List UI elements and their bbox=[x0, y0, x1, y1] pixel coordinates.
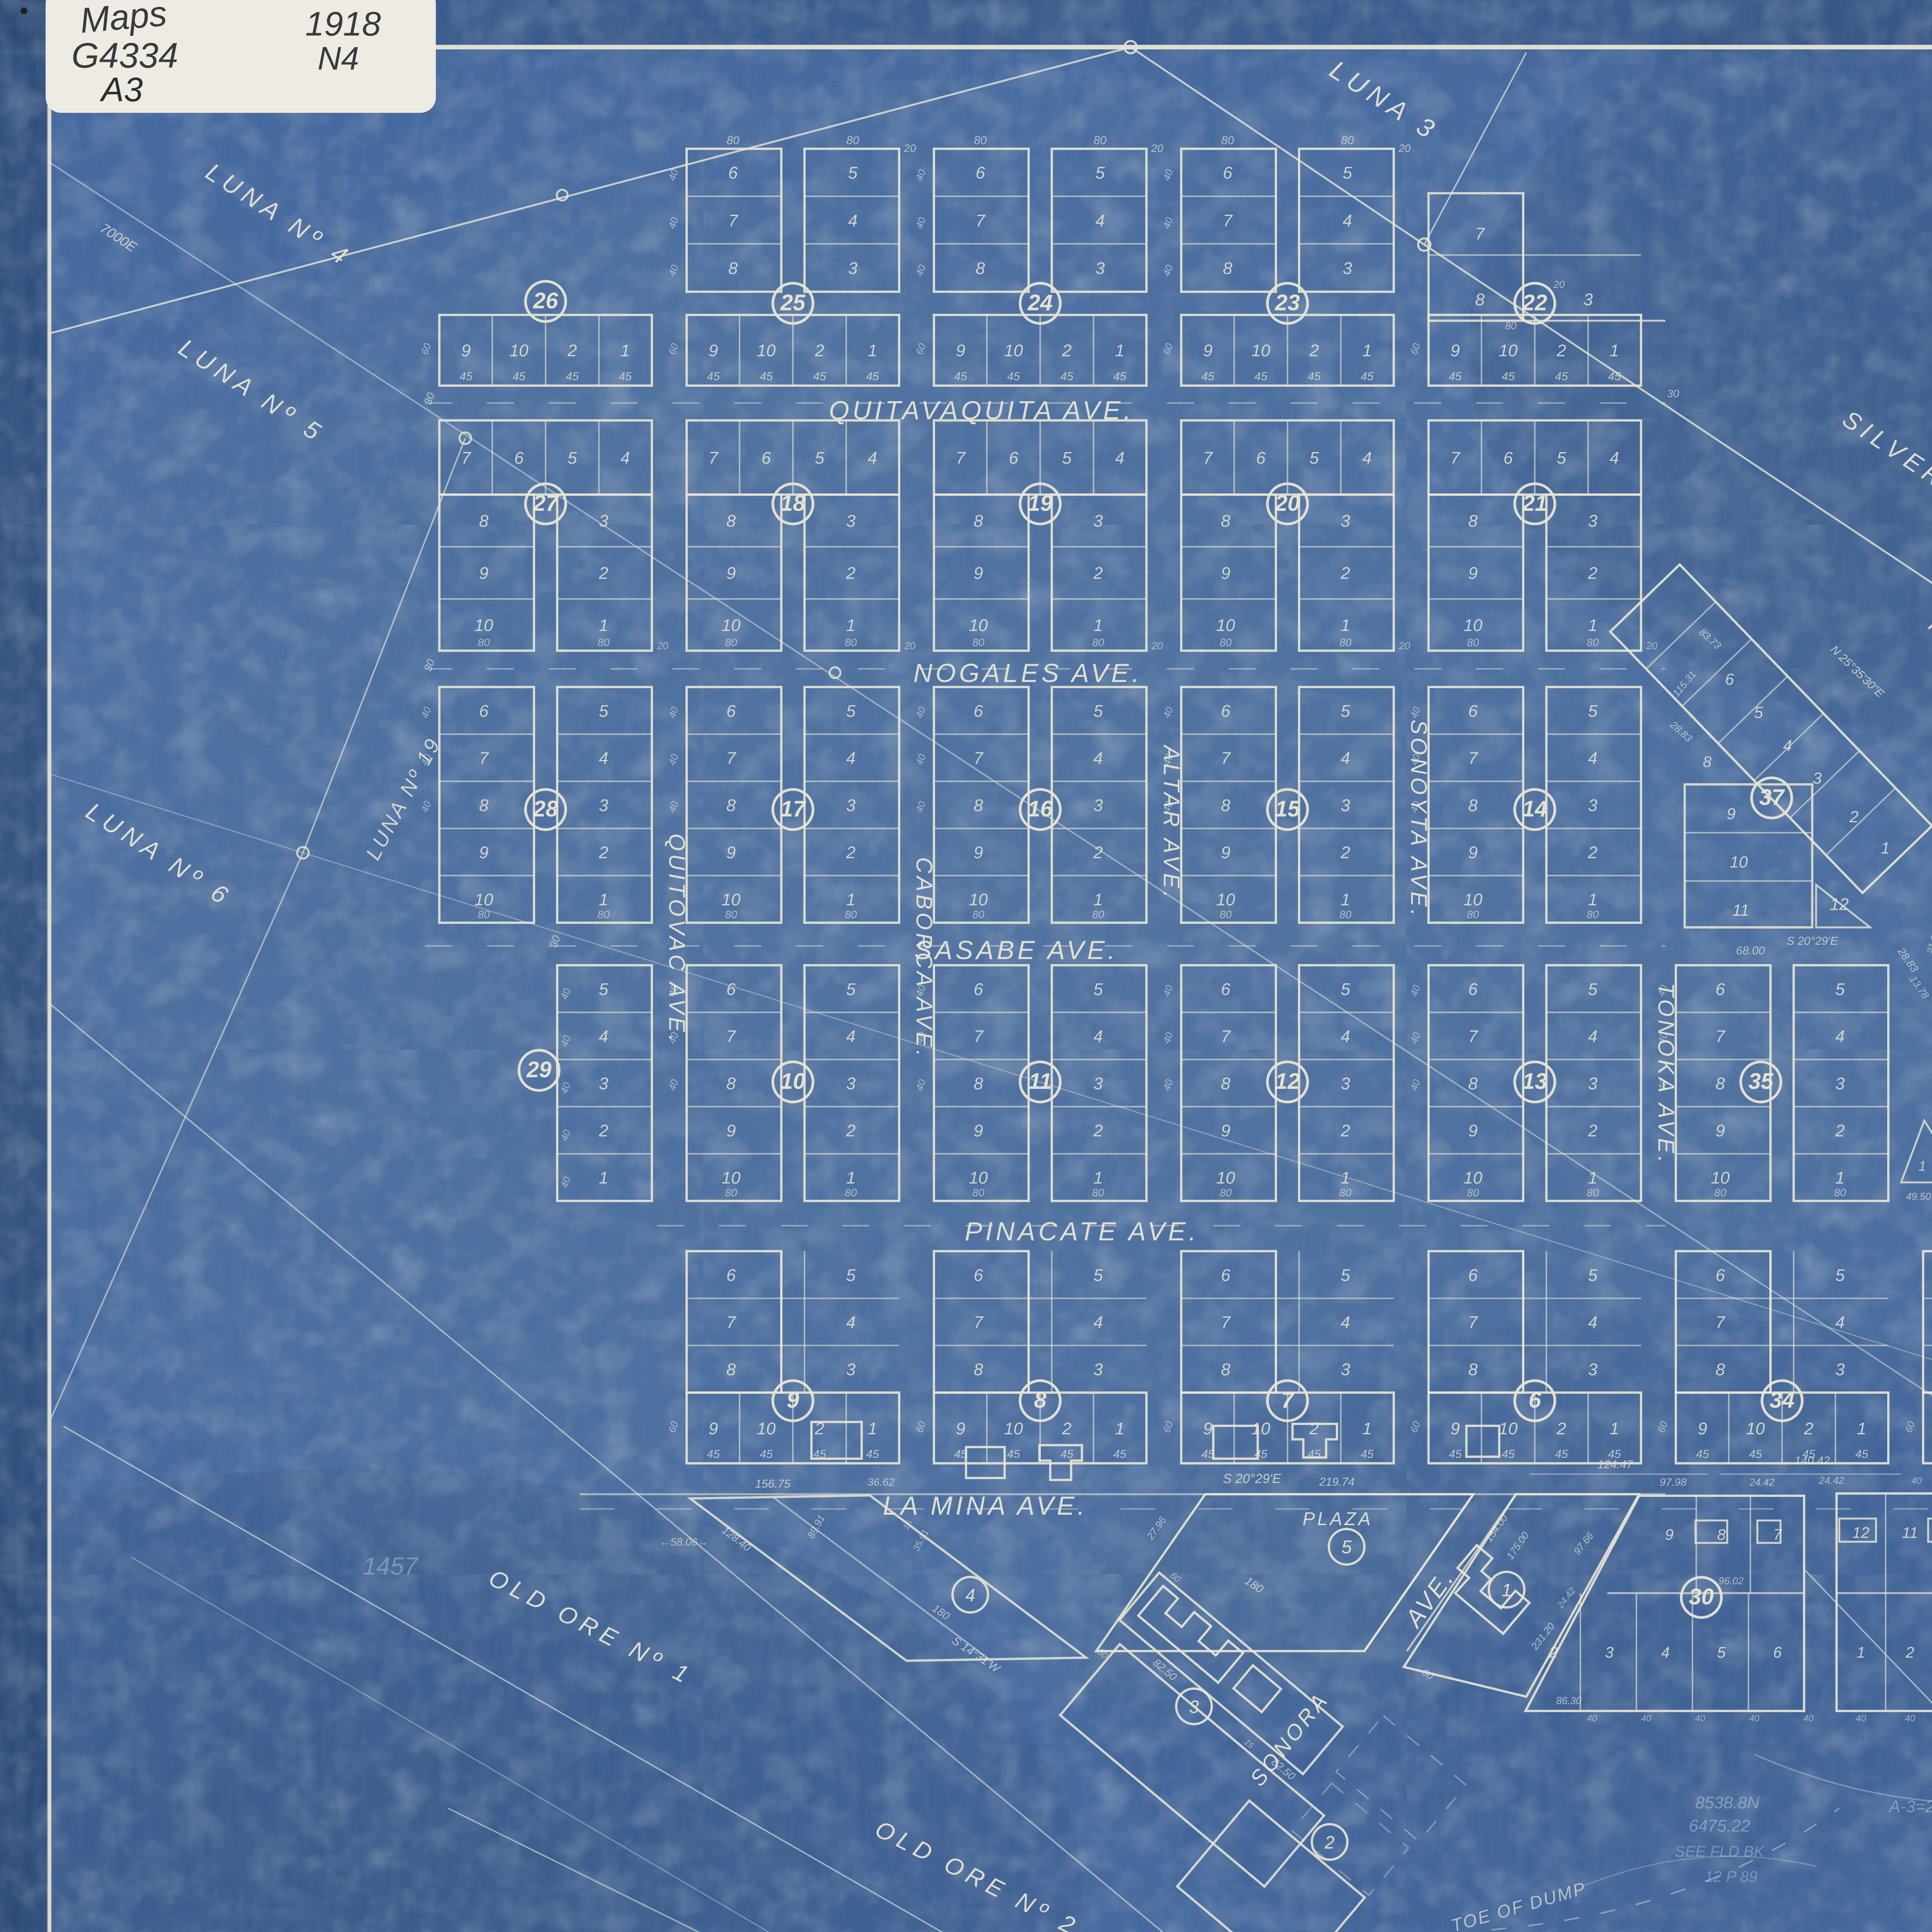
svg-text:3: 3 bbox=[1094, 1360, 1103, 1379]
svg-text:20: 20 bbox=[1151, 142, 1163, 154]
svg-text:8: 8 bbox=[726, 796, 736, 815]
svg-text:12: 12 bbox=[1275, 1069, 1300, 1094]
svg-text:ALTAR AVE.: ALTAR AVE. bbox=[1159, 744, 1184, 900]
svg-text:10: 10 bbox=[757, 341, 776, 360]
svg-text:1: 1 bbox=[1918, 1158, 1926, 1174]
svg-text:2: 2 bbox=[599, 843, 608, 862]
svg-text:3: 3 bbox=[1341, 512, 1350, 531]
svg-text:45: 45 bbox=[1113, 1448, 1126, 1461]
svg-text:1: 1 bbox=[599, 616, 608, 635]
svg-text:45: 45 bbox=[1555, 1448, 1568, 1461]
svg-text:5: 5 bbox=[1310, 449, 1319, 468]
svg-text:2: 2 bbox=[1324, 1832, 1335, 1852]
svg-text:1: 1 bbox=[1115, 1419, 1124, 1438]
svg-text:3: 3 bbox=[846, 1074, 856, 1093]
svg-text:2: 2 bbox=[846, 1121, 855, 1140]
svg-text:8: 8 bbox=[1221, 512, 1231, 531]
svg-text:2: 2 bbox=[1556, 1419, 1566, 1438]
svg-text:6: 6 bbox=[1503, 449, 1513, 468]
svg-text:1: 1 bbox=[1588, 890, 1597, 909]
svg-text:4: 4 bbox=[1343, 211, 1352, 230]
svg-text:2: 2 bbox=[1588, 564, 1597, 583]
svg-text:7: 7 bbox=[461, 449, 471, 468]
svg-text:1: 1 bbox=[1094, 890, 1103, 909]
svg-text:2: 2 bbox=[567, 341, 577, 360]
svg-text:40: 40 bbox=[1695, 1713, 1706, 1724]
svg-text:11: 11 bbox=[1732, 901, 1749, 919]
svg-text:156.75: 156.75 bbox=[755, 1478, 791, 1490]
svg-text:2: 2 bbox=[1549, 1644, 1558, 1661]
svg-text:7: 7 bbox=[1203, 449, 1213, 468]
svg-text:5: 5 bbox=[1835, 980, 1845, 999]
svg-text:8: 8 bbox=[1717, 1526, 1726, 1543]
svg-text:45: 45 bbox=[1201, 370, 1214, 383]
svg-text:7: 7 bbox=[1468, 749, 1478, 768]
svg-text:45: 45 bbox=[1502, 1448, 1515, 1461]
svg-text:80: 80 bbox=[478, 636, 490, 648]
svg-text:2: 2 bbox=[1905, 1644, 1914, 1661]
svg-text:80: 80 bbox=[845, 636, 857, 648]
svg-text:1457: 1457 bbox=[363, 1552, 419, 1580]
svg-text:4: 4 bbox=[1588, 749, 1597, 768]
svg-text:4: 4 bbox=[1588, 1313, 1597, 1332]
svg-text:5: 5 bbox=[848, 163, 858, 182]
svg-text:10: 10 bbox=[1464, 616, 1483, 635]
svg-text:8: 8 bbox=[1034, 1388, 1047, 1413]
svg-text:2: 2 bbox=[1062, 341, 1071, 360]
svg-text:6: 6 bbox=[1725, 670, 1734, 688]
svg-text:8: 8 bbox=[726, 1360, 736, 1379]
svg-text:49.50: 49.50 bbox=[1906, 1190, 1931, 1202]
svg-text:45: 45 bbox=[760, 1448, 773, 1461]
svg-text:6: 6 bbox=[1221, 702, 1231, 721]
svg-text:45: 45 bbox=[1254, 370, 1267, 383]
svg-text:9: 9 bbox=[1221, 1121, 1230, 1140]
svg-text:20: 20 bbox=[904, 640, 916, 651]
svg-text:80: 80 bbox=[1467, 636, 1479, 648]
svg-text:45: 45 bbox=[1555, 370, 1568, 383]
svg-text:7: 7 bbox=[1221, 1313, 1231, 1332]
svg-text:4: 4 bbox=[621, 449, 630, 468]
svg-text:45: 45 bbox=[813, 370, 826, 383]
svg-text:QUITOVAC AVE.: QUITOVAC AVE. bbox=[664, 833, 689, 1044]
svg-text:17: 17 bbox=[781, 796, 806, 821]
svg-text:8538.8N: 8538.8N bbox=[1695, 1793, 1760, 1812]
svg-text:40: 40 bbox=[1856, 1713, 1866, 1724]
svg-text:80: 80 bbox=[972, 636, 985, 648]
svg-text:40: 40 bbox=[1587, 1713, 1597, 1724]
svg-text:80: 80 bbox=[845, 1187, 857, 1199]
svg-text:10: 10 bbox=[474, 890, 493, 909]
svg-text:40: 40 bbox=[1641, 1713, 1651, 1724]
svg-text:80: 80 bbox=[725, 636, 737, 648]
svg-text:1: 1 bbox=[599, 1168, 608, 1187]
svg-text:10: 10 bbox=[510, 341, 529, 360]
svg-text:10: 10 bbox=[757, 1419, 776, 1438]
svg-text:3: 3 bbox=[846, 512, 856, 531]
svg-text:80: 80 bbox=[1587, 1187, 1599, 1199]
svg-text:A-3=29: A-3=29 bbox=[1888, 1797, 1932, 1816]
svg-text:80: 80 bbox=[1092, 636, 1104, 648]
svg-text:1: 1 bbox=[1341, 616, 1350, 635]
svg-text:G4334: G4334 bbox=[71, 36, 178, 75]
svg-text:80: 80 bbox=[1339, 1187, 1352, 1199]
svg-text:45: 45 bbox=[866, 1448, 879, 1461]
svg-text:1: 1 bbox=[868, 1419, 877, 1438]
svg-text:45: 45 bbox=[866, 370, 879, 383]
svg-text:7: 7 bbox=[956, 449, 966, 468]
svg-text:5: 5 bbox=[1062, 449, 1072, 468]
svg-text:3: 3 bbox=[1094, 512, 1103, 531]
svg-text:45: 45 bbox=[954, 370, 967, 383]
svg-text:20: 20 bbox=[903, 142, 916, 154]
svg-text:8: 8 bbox=[1716, 1074, 1725, 1093]
svg-text:80: 80 bbox=[1834, 1187, 1846, 1199]
svg-text:3: 3 bbox=[1341, 1360, 1350, 1379]
svg-text:2: 2 bbox=[599, 564, 608, 583]
svg-text:45: 45 bbox=[1361, 1448, 1374, 1461]
svg-text:3: 3 bbox=[846, 1360, 856, 1379]
svg-text:3: 3 bbox=[846, 796, 856, 815]
svg-text:2: 2 bbox=[846, 843, 855, 862]
svg-text:SONOYTA AVE.: SONOYTA AVE. bbox=[1406, 719, 1431, 919]
svg-text:45: 45 bbox=[1113, 370, 1126, 383]
svg-text:4: 4 bbox=[1094, 749, 1103, 768]
svg-text:7: 7 bbox=[974, 1027, 984, 1046]
svg-text:80: 80 bbox=[1714, 1187, 1726, 1199]
svg-text:2: 2 bbox=[1093, 1121, 1103, 1140]
svg-text:7: 7 bbox=[1223, 211, 1233, 230]
svg-text:80: 80 bbox=[597, 636, 610, 648]
svg-text:2: 2 bbox=[1340, 843, 1350, 862]
svg-text:21: 21 bbox=[1522, 491, 1548, 516]
svg-text:29: 29 bbox=[526, 1057, 552, 1082]
svg-text:28: 28 bbox=[533, 796, 558, 821]
svg-text:SASABE AVE.: SASABE AVE. bbox=[914, 935, 1118, 965]
svg-text:8: 8 bbox=[974, 512, 983, 531]
svg-text:2: 2 bbox=[1309, 1419, 1319, 1438]
svg-text:10: 10 bbox=[1216, 890, 1235, 909]
svg-text:2: 2 bbox=[1062, 1419, 1071, 1438]
svg-text:1: 1 bbox=[621, 341, 630, 360]
svg-text:7: 7 bbox=[1716, 1027, 1726, 1046]
svg-text:5: 5 bbox=[1095, 163, 1105, 182]
svg-text:9: 9 bbox=[956, 1419, 965, 1438]
svg-text:4: 4 bbox=[599, 1027, 608, 1046]
svg-text:2: 2 bbox=[1588, 843, 1597, 862]
svg-text:20: 20 bbox=[1151, 640, 1163, 651]
svg-text:1: 1 bbox=[1857, 1644, 1865, 1661]
svg-text:1: 1 bbox=[868, 341, 877, 360]
svg-text:5: 5 bbox=[568, 449, 577, 468]
svg-text:9: 9 bbox=[974, 564, 983, 583]
svg-text:80: 80 bbox=[725, 908, 737, 920]
svg-text:7: 7 bbox=[726, 1313, 736, 1332]
svg-text:30: 30 bbox=[1689, 1584, 1714, 1609]
svg-text:5: 5 bbox=[1557, 449, 1566, 468]
svg-text:3: 3 bbox=[599, 796, 609, 815]
svg-text:7: 7 bbox=[1475, 224, 1485, 243]
svg-text:2: 2 bbox=[1588, 1121, 1597, 1140]
svg-text:6: 6 bbox=[974, 1266, 983, 1285]
svg-text:6: 6 bbox=[974, 702, 983, 721]
svg-text:7: 7 bbox=[709, 449, 719, 468]
svg-text:7: 7 bbox=[726, 749, 736, 768]
svg-text:9: 9 bbox=[1203, 341, 1213, 360]
svg-text:3: 3 bbox=[1094, 1074, 1103, 1093]
svg-text:9: 9 bbox=[1468, 1121, 1478, 1140]
svg-text:7: 7 bbox=[974, 749, 984, 768]
svg-text:1: 1 bbox=[1610, 1419, 1619, 1438]
svg-text:2: 2 bbox=[1093, 564, 1103, 583]
svg-text:4: 4 bbox=[1362, 449, 1372, 468]
svg-text:24.42: 24.42 bbox=[1818, 1475, 1844, 1486]
svg-text:6: 6 bbox=[479, 702, 489, 721]
svg-text:3: 3 bbox=[1343, 259, 1352, 278]
svg-text:45: 45 bbox=[566, 370, 579, 383]
svg-text:9: 9 bbox=[709, 1419, 718, 1438]
svg-text:23: 23 bbox=[1275, 290, 1300, 315]
svg-text:80: 80 bbox=[1219, 636, 1232, 648]
svg-text:1918: 1918 bbox=[305, 5, 381, 43]
svg-text:9: 9 bbox=[1468, 843, 1478, 862]
svg-text:9: 9 bbox=[479, 564, 488, 583]
svg-text:40: 40 bbox=[1749, 1713, 1760, 1724]
svg-text:4: 4 bbox=[868, 449, 877, 468]
svg-text:45: 45 bbox=[619, 370, 632, 383]
svg-text:8: 8 bbox=[974, 796, 983, 815]
svg-text:PLAZA: PLAZA bbox=[1303, 1509, 1373, 1529]
svg-text:80: 80 bbox=[725, 1187, 737, 1199]
svg-text:5: 5 bbox=[1341, 1266, 1350, 1285]
svg-text:45: 45 bbox=[1308, 1448, 1321, 1461]
svg-text:6: 6 bbox=[1773, 1644, 1782, 1661]
svg-text:12: 12 bbox=[1852, 1524, 1870, 1541]
svg-text:8: 8 bbox=[1468, 512, 1478, 531]
svg-text:9: 9 bbox=[1716, 1121, 1725, 1140]
svg-text:3: 3 bbox=[1588, 1074, 1598, 1093]
svg-text:7: 7 bbox=[1468, 1027, 1478, 1046]
svg-text:A3: A3 bbox=[99, 70, 143, 109]
svg-text:8: 8 bbox=[1703, 753, 1712, 770]
svg-text:4: 4 bbox=[1610, 449, 1619, 468]
svg-text:4: 4 bbox=[1341, 1313, 1350, 1332]
svg-text:8: 8 bbox=[1468, 1360, 1478, 1379]
svg-text:8: 8 bbox=[1223, 259, 1233, 278]
svg-text:4: 4 bbox=[1094, 1027, 1103, 1046]
svg-text:5: 5 bbox=[1342, 1537, 1352, 1558]
svg-text:68.00: 68.00 bbox=[1736, 944, 1765, 957]
svg-text:4: 4 bbox=[1341, 1027, 1350, 1046]
svg-text:9: 9 bbox=[726, 564, 736, 583]
svg-text:1: 1 bbox=[1857, 1419, 1866, 1438]
svg-text:80: 80 bbox=[974, 134, 987, 147]
svg-text:10: 10 bbox=[722, 890, 741, 909]
svg-text:6: 6 bbox=[974, 980, 983, 999]
svg-text:TONOKA AVE.: TONOKA AVE. bbox=[1653, 983, 1679, 1166]
svg-text:7: 7 bbox=[1716, 1313, 1726, 1332]
svg-text:CABORCA AVE.: CABORCA AVE. bbox=[912, 857, 937, 1060]
svg-text:9: 9 bbox=[1726, 804, 1735, 823]
svg-text:6: 6 bbox=[1716, 980, 1725, 999]
svg-text:3: 3 bbox=[1095, 259, 1105, 278]
svg-text:40: 40 bbox=[1912, 1476, 1922, 1486]
svg-text:35: 35 bbox=[1748, 1069, 1774, 1094]
svg-text:3: 3 bbox=[1835, 1074, 1845, 1093]
svg-text:45: 45 bbox=[1007, 370, 1020, 383]
svg-text:20: 20 bbox=[1399, 640, 1410, 651]
svg-text:6: 6 bbox=[1468, 702, 1478, 721]
svg-text:45: 45 bbox=[1502, 370, 1515, 383]
svg-text:40: 40 bbox=[1803, 1713, 1814, 1724]
svg-text:5: 5 bbox=[1717, 1644, 1726, 1661]
svg-text:8: 8 bbox=[1468, 796, 1478, 815]
svg-text:4: 4 bbox=[848, 211, 857, 230]
svg-text:27: 27 bbox=[533, 491, 559, 516]
svg-text:26: 26 bbox=[533, 288, 558, 313]
svg-text:10: 10 bbox=[1464, 890, 1483, 909]
svg-text:7: 7 bbox=[1221, 1027, 1231, 1046]
svg-text:1: 1 bbox=[1610, 341, 1619, 360]
svg-text:10: 10 bbox=[1004, 1419, 1023, 1438]
svg-text:5: 5 bbox=[1835, 1266, 1845, 1285]
svg-text:4: 4 bbox=[599, 749, 608, 768]
svg-text:6: 6 bbox=[1223, 163, 1233, 182]
svg-text:14: 14 bbox=[1522, 796, 1548, 821]
svg-text:80: 80 bbox=[846, 134, 859, 147]
svg-text:10: 10 bbox=[1746, 1419, 1765, 1438]
svg-text:6: 6 bbox=[726, 1266, 736, 1285]
svg-text:9: 9 bbox=[479, 843, 488, 862]
svg-text:5: 5 bbox=[846, 702, 856, 721]
svg-text:2: 2 bbox=[1849, 808, 1858, 826]
svg-text:80: 80 bbox=[845, 908, 857, 920]
svg-text:86.30: 86.30 bbox=[1556, 1695, 1582, 1706]
svg-text:5: 5 bbox=[1094, 702, 1103, 721]
svg-text:1: 1 bbox=[1362, 1419, 1372, 1438]
svg-text:6: 6 bbox=[976, 163, 985, 182]
svg-text:1: 1 bbox=[1362, 341, 1372, 360]
svg-text:2: 2 bbox=[1309, 341, 1319, 360]
svg-text:11: 11 bbox=[1902, 1524, 1918, 1541]
svg-text:10: 10 bbox=[781, 1069, 806, 1094]
svg-text:10: 10 bbox=[969, 616, 988, 635]
svg-text:24: 24 bbox=[1027, 290, 1053, 315]
svg-text:8: 8 bbox=[1716, 1360, 1725, 1379]
svg-text:2: 2 bbox=[599, 1121, 608, 1140]
svg-text:10: 10 bbox=[1464, 1168, 1483, 1187]
svg-text:7: 7 bbox=[726, 1027, 736, 1046]
svg-text:80: 80 bbox=[597, 908, 610, 920]
svg-text:5: 5 bbox=[1588, 980, 1598, 999]
svg-text:4: 4 bbox=[1835, 1313, 1845, 1332]
svg-text:4: 4 bbox=[1341, 749, 1350, 768]
svg-text:5: 5 bbox=[1343, 163, 1352, 182]
svg-text:9: 9 bbox=[1451, 1419, 1460, 1438]
svg-text:1: 1 bbox=[846, 616, 855, 635]
svg-text:3: 3 bbox=[1341, 796, 1350, 815]
svg-text:7: 7 bbox=[1451, 449, 1461, 468]
svg-text:80: 80 bbox=[1092, 1187, 1104, 1199]
svg-text:6475.22: 6475.22 bbox=[1689, 1816, 1750, 1835]
svg-text:8: 8 bbox=[479, 512, 489, 531]
svg-text:5: 5 bbox=[815, 449, 825, 468]
svg-text:3: 3 bbox=[1588, 1360, 1598, 1379]
svg-text:6: 6 bbox=[728, 163, 738, 182]
svg-text:80: 80 bbox=[1341, 134, 1354, 147]
svg-text:2: 2 bbox=[846, 564, 855, 583]
svg-text:80: 80 bbox=[1219, 1187, 1232, 1199]
svg-text:4: 4 bbox=[1835, 1027, 1845, 1046]
svg-text:45: 45 bbox=[1060, 370, 1073, 383]
svg-text:30: 30 bbox=[1667, 388, 1679, 400]
svg-text:97.98: 97.98 bbox=[1660, 1476, 1687, 1488]
svg-text:45: 45 bbox=[1361, 370, 1374, 383]
svg-text:8: 8 bbox=[1475, 290, 1485, 309]
svg-text:5: 5 bbox=[846, 980, 856, 999]
svg-text:4: 4 bbox=[965, 1585, 975, 1605]
svg-text:9: 9 bbox=[726, 1121, 736, 1140]
svg-text:80: 80 bbox=[972, 908, 985, 920]
svg-text:80: 80 bbox=[1587, 636, 1599, 648]
svg-text:9: 9 bbox=[709, 341, 718, 360]
svg-text:4: 4 bbox=[1095, 211, 1105, 230]
svg-text:2: 2 bbox=[1556, 341, 1566, 360]
svg-text:6: 6 bbox=[514, 449, 524, 468]
svg-text:6: 6 bbox=[762, 449, 771, 468]
svg-text:5: 5 bbox=[1588, 702, 1598, 721]
svg-text:4: 4 bbox=[1661, 1644, 1670, 1661]
svg-text:140.42: 140.42 bbox=[1794, 1454, 1830, 1467]
svg-text:9: 9 bbox=[1221, 564, 1230, 583]
svg-text:45: 45 bbox=[1007, 1448, 1020, 1461]
svg-text:SEE FLD BK: SEE FLD BK bbox=[1675, 1843, 1765, 1860]
svg-text:4: 4 bbox=[846, 749, 855, 768]
svg-text:9: 9 bbox=[956, 341, 965, 360]
svg-text:20: 20 bbox=[1398, 142, 1411, 154]
svg-text:6: 6 bbox=[1221, 980, 1231, 999]
svg-text:3: 3 bbox=[1835, 1360, 1845, 1379]
svg-text:80: 80 bbox=[1587, 908, 1599, 920]
svg-text:4: 4 bbox=[1094, 1313, 1103, 1332]
svg-text:5: 5 bbox=[599, 702, 609, 721]
svg-text:12 P 89: 12 P 89 bbox=[1705, 1868, 1757, 1885]
svg-text:36.62: 36.62 bbox=[867, 1476, 895, 1488]
svg-text:2: 2 bbox=[815, 341, 824, 360]
svg-text:8: 8 bbox=[974, 1074, 983, 1093]
svg-text:80: 80 bbox=[1092, 908, 1104, 920]
svg-text:40: 40 bbox=[1905, 1713, 1915, 1724]
svg-text:6: 6 bbox=[1529, 1388, 1541, 1413]
svg-text:20: 20 bbox=[1275, 491, 1300, 516]
svg-text:3: 3 bbox=[1094, 796, 1103, 815]
svg-text:45: 45 bbox=[1749, 1448, 1762, 1461]
svg-text:3: 3 bbox=[1588, 512, 1598, 531]
svg-text:1: 1 bbox=[1094, 1168, 1103, 1187]
svg-text:25: 25 bbox=[780, 290, 806, 315]
svg-text:10: 10 bbox=[1216, 616, 1235, 635]
svg-text:6: 6 bbox=[726, 980, 736, 999]
svg-text:1: 1 bbox=[1094, 616, 1103, 635]
svg-text:9: 9 bbox=[461, 341, 471, 360]
svg-text:3: 3 bbox=[599, 1074, 609, 1093]
svg-text:1: 1 bbox=[1115, 341, 1124, 360]
svg-text:80: 80 bbox=[1467, 908, 1479, 920]
svg-text:10: 10 bbox=[722, 1168, 741, 1187]
svg-text:80: 80 bbox=[726, 134, 740, 147]
svg-text:45: 45 bbox=[1449, 370, 1462, 383]
svg-text:20: 20 bbox=[657, 640, 668, 651]
